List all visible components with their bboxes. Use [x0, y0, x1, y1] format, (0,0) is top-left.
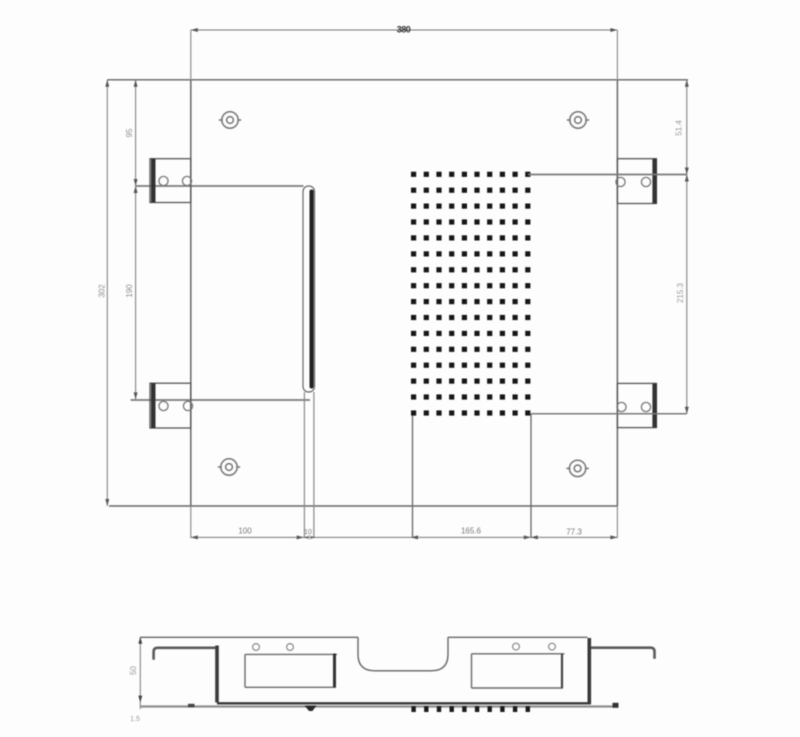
svg-text:100: 100 — [238, 527, 252, 536]
svg-text:1.5: 1.5 — [130, 716, 140, 723]
svg-text:302: 302 — [98, 284, 107, 298]
svg-text:380: 380 — [397, 25, 411, 35]
svg-text:165.6: 165.6 — [461, 527, 482, 536]
svg-text:95: 95 — [125, 128, 134, 137]
svg-text:50: 50 — [129, 666, 138, 675]
svg-text:51.4: 51.4 — [675, 120, 684, 136]
svg-text:215.3: 215.3 — [676, 282, 685, 303]
svg-text:190: 190 — [125, 284, 134, 298]
svg-text:77.3: 77.3 — [566, 528, 582, 537]
svg-text:10: 10 — [304, 529, 312, 536]
